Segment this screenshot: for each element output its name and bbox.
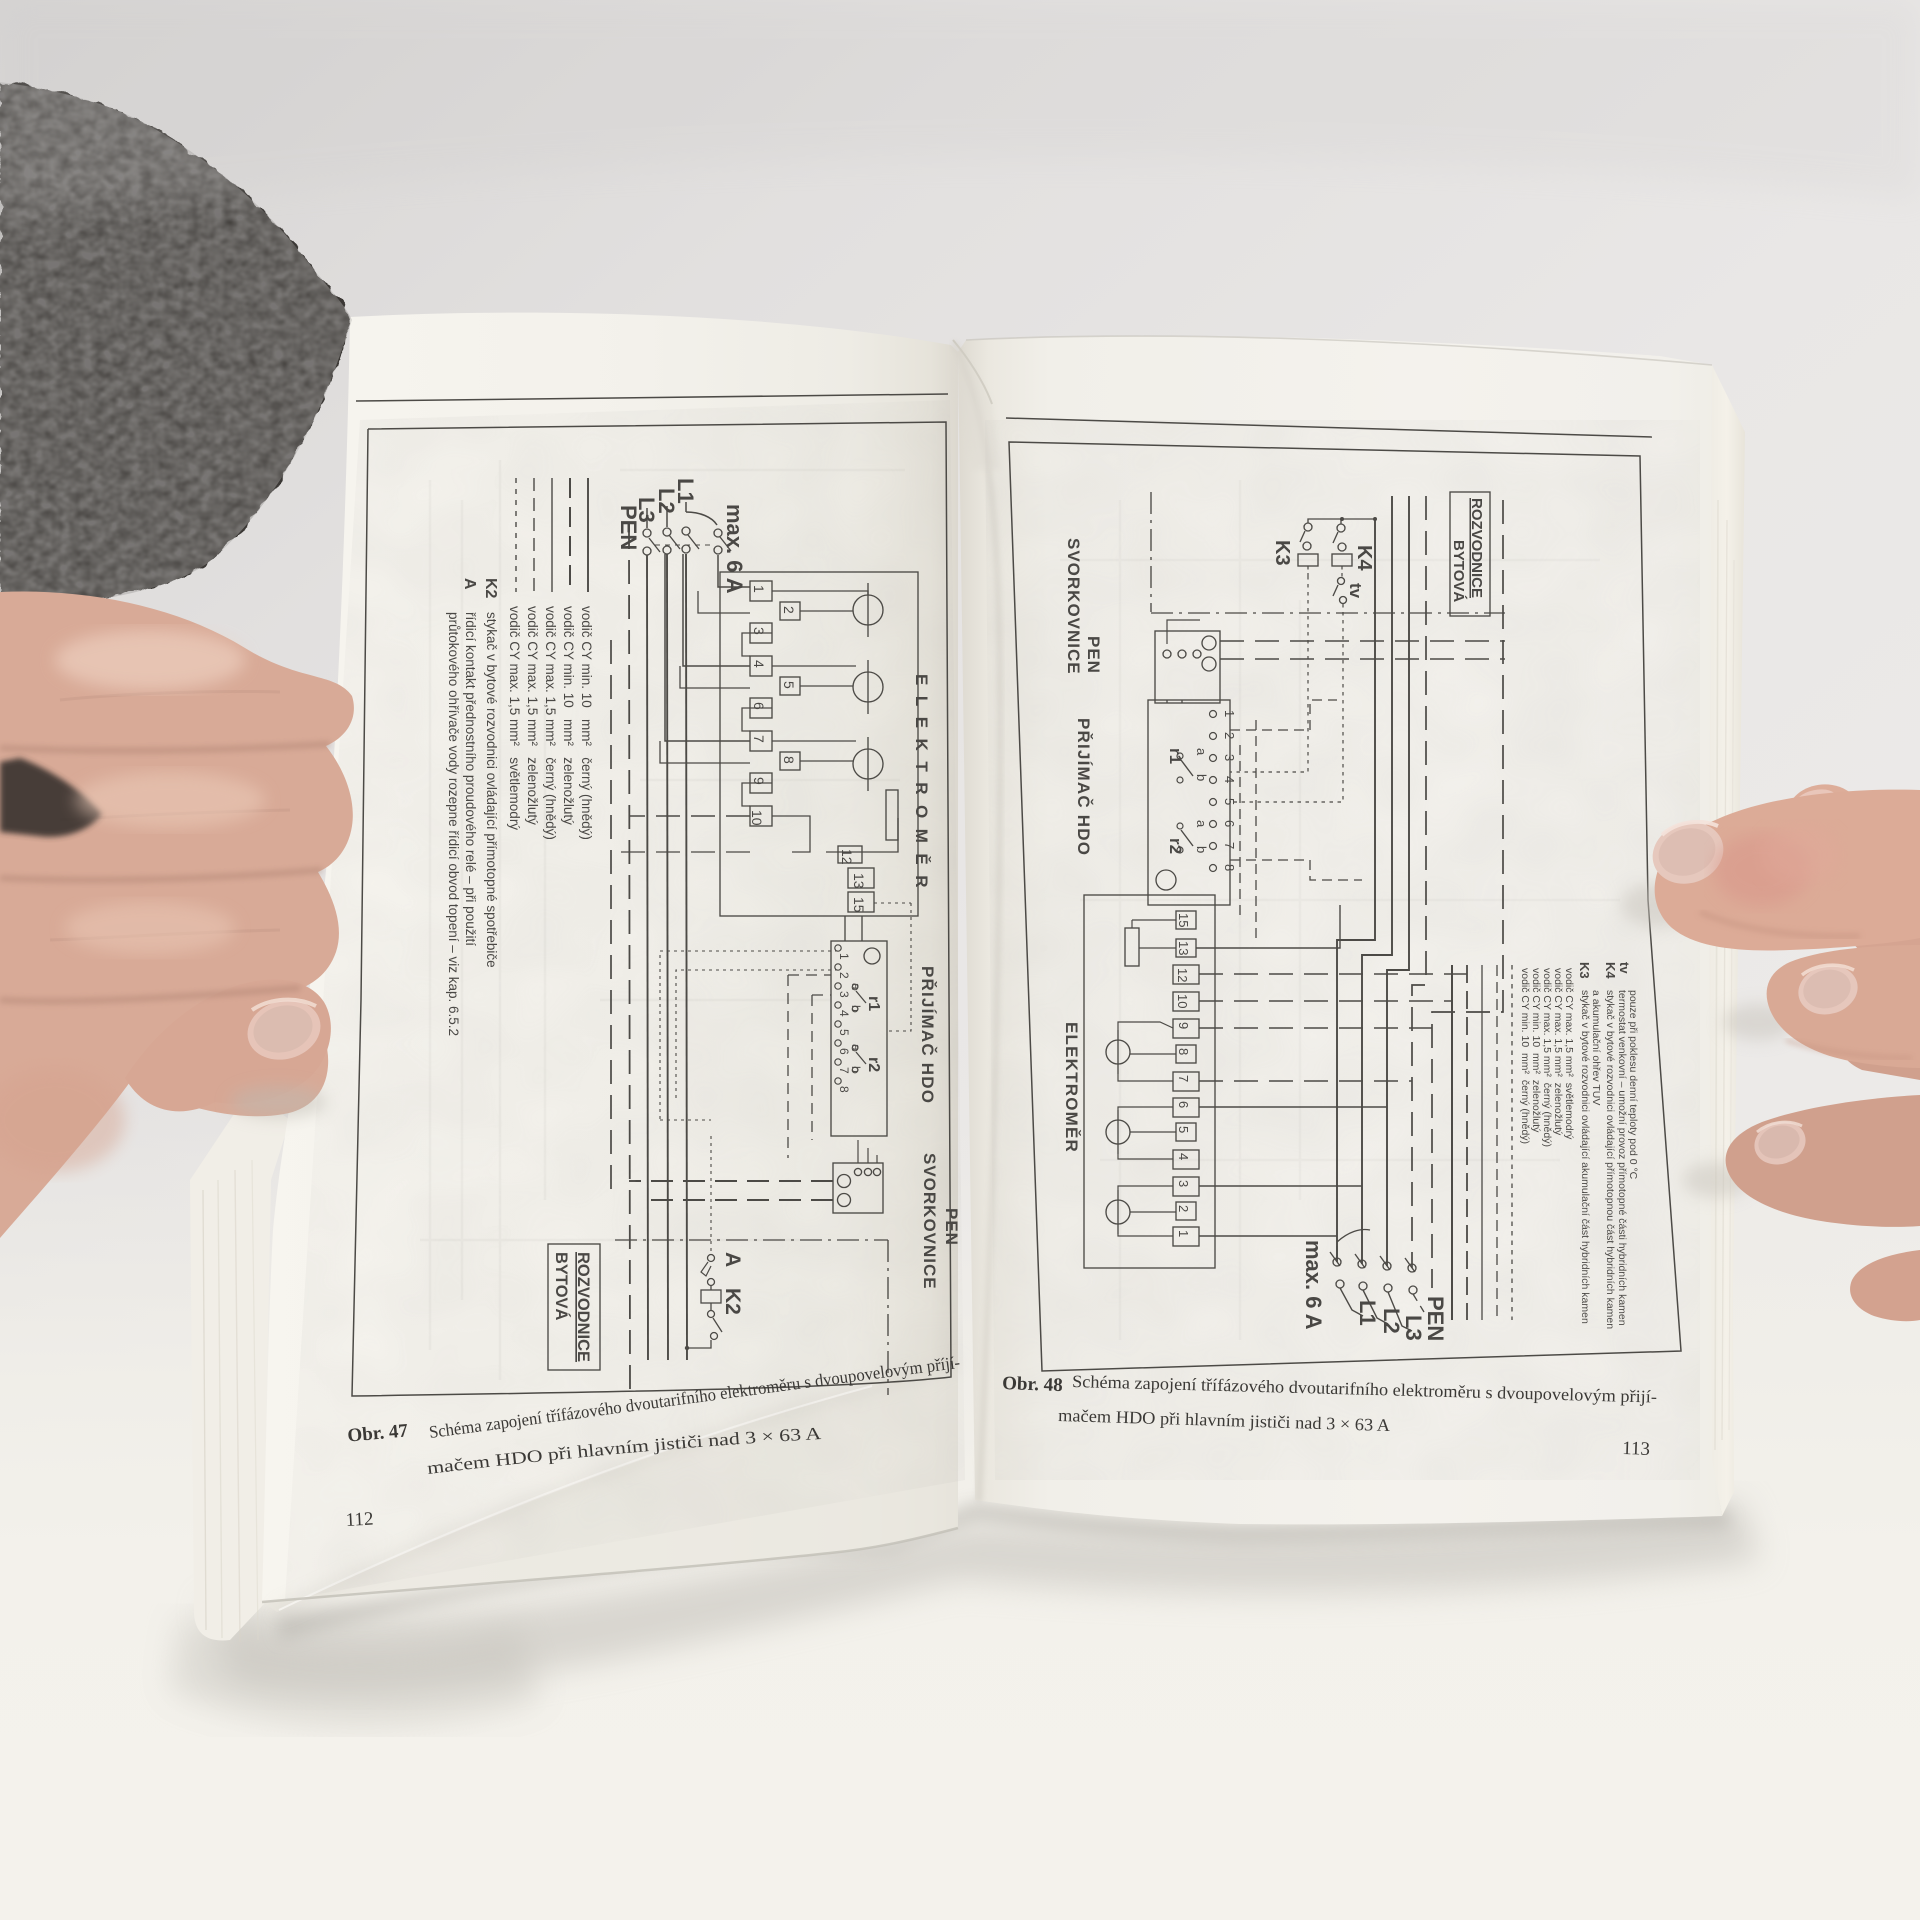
svg-text:3: 3: [751, 627, 767, 635]
svg-text:termostat venkovní – umožní pr: termostat venkovní – umožní provoz přímo…: [1616, 990, 1628, 1326]
svg-text:vodič CY max. 1,5 mm² zeleno: vodič CY max. 1,5 mm² zelenožlutý: [525, 606, 540, 825]
svg-text:a: a: [1194, 748, 1209, 756]
svg-text:9: 9: [1176, 1022, 1191, 1029]
svg-text:2: 2: [1176, 1205, 1191, 1212]
svg-text:stykač v bytové rozvodnici ovl: stykač v bytové rozvodnici ovládající ak…: [1579, 990, 1591, 1324]
svg-text:5: 5: [781, 681, 797, 689]
svg-text:1: 1: [1176, 1230, 1191, 1237]
svg-text:stykač v bytové rozvodnici ovl: stykač v bytové rozvodnici ovládající př…: [484, 612, 499, 968]
svg-text:vodič CY max. 1,5 mm² světle: vodič CY max. 1,5 mm² světlemodrý: [507, 606, 522, 830]
svg-text:L1: L1: [1355, 1300, 1380, 1326]
svg-text:BYTOVÁ: BYTOVÁ: [1450, 540, 1467, 602]
svg-text:vodič CY max. 1,5 mm² zelenož: vodič CY max. 1,5 mm² zelenožlutý: [1552, 968, 1564, 1136]
svg-text:b: b: [849, 1005, 863, 1012]
svg-text:15: 15: [1176, 913, 1191, 927]
svg-text:8: 8: [1176, 1048, 1191, 1055]
svg-text:L2: L2: [1379, 1308, 1404, 1334]
svg-text:9: 9: [751, 777, 767, 785]
svg-text:PEN: PEN: [1423, 1296, 1448, 1341]
svg-text:K2: K2: [721, 1288, 744, 1315]
svg-text:b: b: [1194, 846, 1209, 853]
svg-text:a: a: [849, 983, 863, 990]
svg-text:3: 3: [837, 991, 851, 998]
svg-text:6: 6: [1176, 1101, 1191, 1108]
svg-text:7: 7: [837, 1067, 851, 1074]
svg-text:b: b: [849, 1066, 863, 1073]
svg-text:3: 3: [1176, 1180, 1191, 1187]
svg-text:PEN: PEN: [1084, 636, 1103, 674]
svg-text:PEN: PEN: [942, 1208, 961, 1246]
svg-text:ELEKTROMĚR: ELEKTROMĚR: [1062, 1022, 1081, 1153]
svg-text:pouze při poklesu denní teplot: pouze při poklesu denní teploty pod 0 °C: [1627, 990, 1639, 1180]
svg-text:stykač v bytové rozvodnici ovl: stykač v bytové rozvodnici ovládající př…: [1604, 990, 1616, 1329]
svg-text:K2: K2: [482, 578, 499, 599]
svg-text:112: 112: [345, 1509, 374, 1531]
svg-text:8: 8: [1222, 864, 1237, 871]
svg-text:SVORKOVNICE: SVORKOVNICE: [1064, 538, 1083, 675]
svg-text:10: 10: [1175, 994, 1190, 1008]
svg-text:řídicí kontakt přednostního pr: řídicí kontakt přednostního proudového r…: [463, 612, 478, 946]
svg-text:r1: r1: [1166, 748, 1185, 764]
svg-text:5: 5: [837, 1029, 851, 1036]
svg-text:průtokového ohřívače vody roze: průtokového ohřívače vody rozepne řídicí…: [446, 612, 461, 1036]
svg-text:vodič CY max. 1,5 mm² světlem: vodič CY max. 1,5 mm² světlemodrý: [1563, 968, 1575, 1140]
svg-text:a: a: [849, 1044, 863, 1051]
svg-text:vodič CY min. 10 mm² černý (: vodič CY min. 10 mm² černý (hnědý): [1519, 968, 1531, 1144]
svg-text:r2: r2: [1166, 838, 1185, 854]
svg-text:K3: K3: [1577, 962, 1592, 979]
svg-text:6: 6: [1222, 820, 1237, 827]
svg-text:PŘIJÍMAČ HDO: PŘIJÍMAČ HDO: [918, 966, 937, 1104]
svg-text:PŘIJÍMAČ HDO: PŘIJÍMAČ HDO: [1074, 718, 1093, 856]
svg-text:113: 113: [1622, 1438, 1651, 1460]
svg-text:vodič CY min. 10 mm² černý: vodič CY min. 10 mm² černý (hnědý): [579, 606, 594, 840]
svg-text:a akumulační ohřev TUV: a akumulační ohřev TUV: [1590, 990, 1602, 1105]
svg-text:SVORKOVNICE: SVORKOVNICE: [920, 1153, 939, 1290]
svg-text:vodič CY max. 1,5 mm² černý (: vodič CY max. 1,5 mm² černý (hnědý): [1541, 968, 1553, 1147]
svg-text:PEN: PEN: [616, 505, 641, 550]
svg-text:tv: tv: [1617, 962, 1632, 974]
svg-text:7: 7: [751, 735, 767, 743]
svg-text:2: 2: [837, 972, 851, 979]
svg-text:A: A: [461, 578, 478, 590]
svg-text:vodič CY min. 10 mm² zelen: vodič CY min. 10 mm² zelenožlutý: [561, 606, 576, 825]
svg-text:max. 6 A: max. 6 A: [722, 504, 747, 594]
svg-text:1: 1: [751, 585, 767, 593]
svg-text:4: 4: [837, 1010, 851, 1017]
svg-text:ELEKTROMĚR: ELEKTROMĚR: [912, 674, 931, 898]
svg-text:8: 8: [837, 1086, 851, 1093]
svg-text:vodič CY min. 10 mm² zelenož: vodič CY min. 10 mm² zelenožlutý: [1530, 968, 1542, 1133]
svg-text:8: 8: [781, 756, 797, 764]
svg-text:tv: tv: [1346, 583, 1365, 599]
svg-text:ROZVODNICE: ROZVODNICE: [1468, 498, 1485, 598]
svg-text:4: 4: [1222, 776, 1237, 783]
svg-text:6: 6: [751, 702, 767, 710]
svg-text:b: b: [1194, 774, 1209, 781]
svg-text:ROZVODNICE: ROZVODNICE: [574, 1252, 592, 1362]
svg-text:max. 6 A: max. 6 A: [1301, 1240, 1326, 1330]
svg-text:r2: r2: [865, 1057, 882, 1072]
svg-text:7: 7: [1176, 1075, 1191, 1082]
svg-text:15: 15: [851, 897, 867, 913]
svg-text:6: 6: [837, 1048, 851, 1055]
svg-text:4: 4: [751, 660, 767, 668]
svg-text:5: 5: [1222, 798, 1237, 805]
svg-text:1: 1: [837, 953, 851, 960]
svg-text:3: 3: [1222, 754, 1237, 761]
svg-text:vodič CY max. 1,5 mm² černý: vodič CY max. 1,5 mm² černý (hnědý): [543, 606, 558, 840]
svg-text:K4: K4: [1603, 962, 1618, 979]
svg-text:a: a: [1194, 820, 1209, 828]
svg-text:2: 2: [1222, 732, 1237, 739]
svg-text:12: 12: [1175, 968, 1190, 982]
svg-text:BYTOVÁ: BYTOVÁ: [552, 1252, 571, 1321]
svg-text:12: 12: [839, 849, 855, 865]
svg-text:4: 4: [1176, 1153, 1191, 1160]
svg-text:r1: r1: [865, 996, 882, 1011]
svg-text:13: 13: [1176, 941, 1191, 955]
svg-text:Obr. 48: Obr. 48: [1002, 1373, 1063, 1396]
svg-text:5: 5: [1176, 1126, 1191, 1133]
svg-text:K4: K4: [1353, 545, 1375, 571]
svg-text:A: A: [721, 1252, 744, 1267]
svg-text:7: 7: [1222, 842, 1237, 849]
svg-text:13: 13: [851, 873, 867, 889]
svg-text:2: 2: [781, 606, 797, 614]
svg-text:10: 10: [749, 810, 765, 826]
svg-text:1: 1: [1222, 710, 1237, 717]
svg-text:L3: L3: [1401, 1315, 1426, 1341]
svg-text:K3: K3: [1271, 540, 1293, 566]
